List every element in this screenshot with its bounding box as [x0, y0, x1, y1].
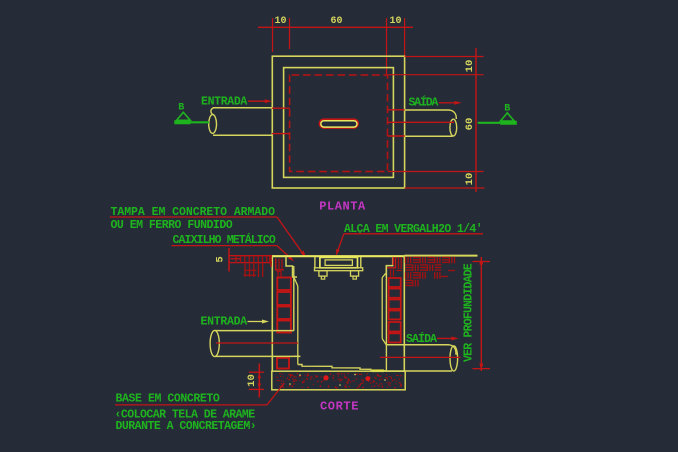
svg-text:SAÍDA: SAÍDA — [409, 96, 439, 110]
svg-text:60: 60 — [464, 118, 476, 131]
svg-text:PLANTA: PLANTA — [319, 200, 366, 214]
svg-text:5: 5 — [215, 256, 227, 262]
svg-text:ENTRADA: ENTRADA — [201, 96, 247, 109]
svg-text:10: 10 — [464, 60, 476, 73]
svg-text:10: 10 — [274, 16, 286, 27]
svg-text:CAIXILHO METÁLICO: CAIXILHO METÁLICO — [173, 233, 276, 247]
svg-text:10: 10 — [246, 374, 258, 387]
svg-text:60: 60 — [330, 16, 342, 27]
svg-text:DURANTE A CONCRETAGEM›: DURANTE A CONCRETAGEM› — [116, 420, 257, 433]
svg-text:OU EM FERRO FUNDIDO: OU EM FERRO FUNDIDO — [111, 219, 233, 232]
svg-text:BASE EM CONCRETO: BASE EM CONCRETO — [116, 393, 220, 406]
svg-text:SAÍDA: SAÍDA — [406, 332, 437, 346]
svg-text:10: 10 — [464, 173, 476, 186]
svg-text:CORTE: CORTE — [320, 400, 359, 414]
svg-text:ENTRADA: ENTRADA — [201, 316, 248, 329]
svg-text:10: 10 — [389, 16, 401, 27]
svg-text:VER PROFUNDIDADE: VER PROFUNDIDADE — [463, 263, 476, 362]
